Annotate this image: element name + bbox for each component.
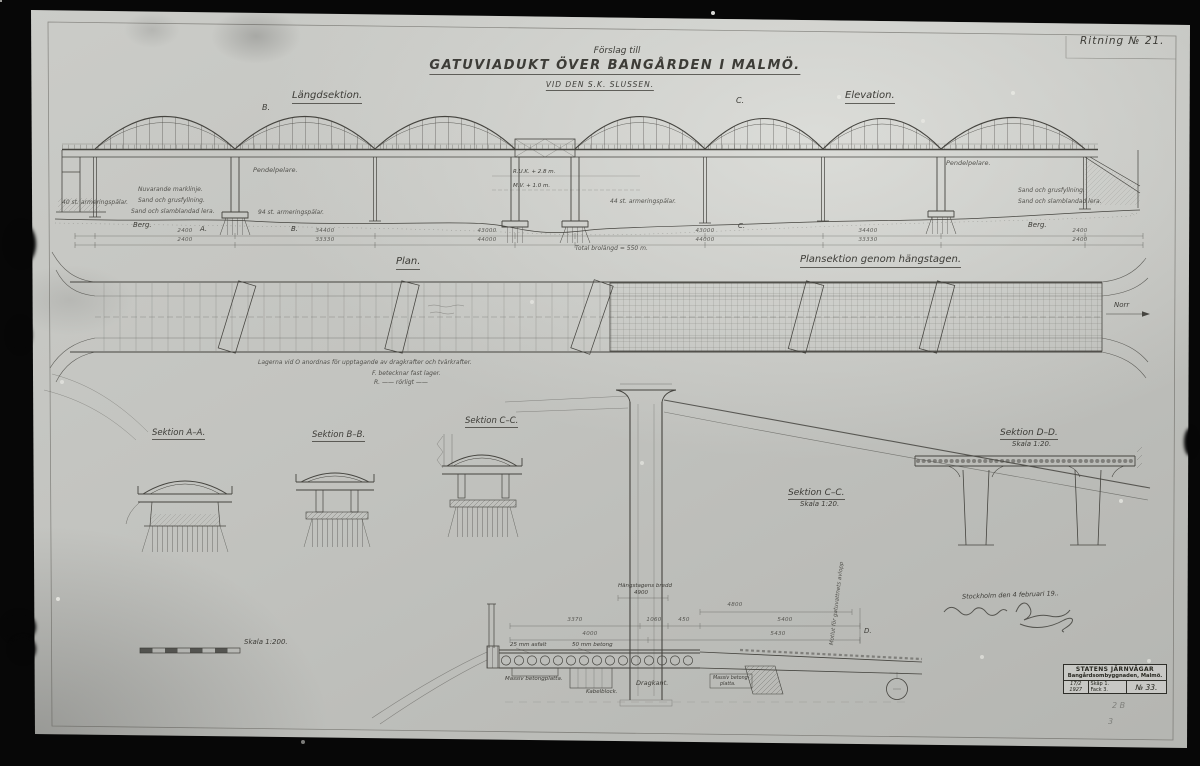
label-ritning-number: Ritning № 21.	[1080, 36, 1165, 47]
label-massiv-left: Massiv betongplatta.	[505, 677, 563, 683]
label-title-sub: VID DEN S.K. SLUSSEN.	[546, 81, 654, 91]
dim-sec-5430: 5430	[770, 632, 785, 638]
marker-d: D.	[864, 628, 872, 635]
label-ruk-level: R.U.K. + 2.8 m.	[513, 170, 555, 176]
dim-top-1: 34400	[316, 229, 335, 235]
label-view-langdsektion: Längdsektion.	[292, 91, 362, 104]
label-sektion-dd: Sektion D–D.	[1000, 429, 1058, 440]
marker-c-top: C.	[736, 97, 744, 105]
label-sand-lera-right: Sand och slamblandad lera.	[1018, 199, 1102, 205]
signature-strokes	[944, 603, 1073, 632]
label-kabelblock: Kabelblock.	[586, 690, 618, 696]
dim-top-4: 34400	[859, 229, 878, 235]
label-lager-note-1: Lagerna vid Ö anordnas för upptagande av…	[258, 360, 472, 366]
stamp-location-cell: Skåp 1.Fack 3.	[1089, 681, 1127, 693]
photo-edge-blob	[1184, 428, 1196, 456]
photo-edge-blob	[8, 318, 32, 352]
label-pendelpelare-right: Pendelpelare.	[946, 160, 991, 167]
label-lager-note-3: R. —— rörligt ——	[374, 380, 428, 386]
dim-bottom-0: 2400	[177, 238, 192, 244]
label-palar-mid: 44 st. armeringspålar.	[610, 199, 676, 205]
label-massiv-right-1: Massiv betong-	[713, 676, 749, 681]
label-mv-level: M.V. + 1.0 m.	[513, 184, 550, 190]
label-sektion-cc-small: Sektion C–C.	[465, 417, 518, 428]
stamp-date-cell: 17/21927	[1064, 681, 1089, 693]
label-total-length: Total brolängd = 550 m.	[575, 246, 648, 252]
drawing-paper: Ritning № 21. Förslag till GATUVIADUKT Ö…	[0, 0, 1200, 766]
label-sand-grus-right: Sand och grusfyllning.	[1018, 188, 1085, 194]
dim-sec-4000: 4000	[582, 632, 597, 638]
label-betong: 50 mm betong	[572, 643, 613, 649]
label-sektion-cc-large: Sektion C–C.	[788, 489, 845, 500]
drawing-linework	[0, 0, 1200, 766]
photo-backdrop: Ritning № 21. Förslag till GATUVIADUKT Ö…	[0, 0, 1200, 766]
dim-bottom-3: 44000	[696, 238, 715, 244]
dim-sec-450: 450	[678, 618, 689, 624]
dim-top-5: 2400	[1072, 229, 1087, 235]
label-asfalt: 25 mm asfalt	[510, 643, 546, 649]
dim-sec-5400: 5400	[777, 618, 792, 624]
dim-bottom-2: 44000	[478, 238, 497, 244]
label-massiv-right-2: platta.	[720, 682, 736, 687]
label-berg-right: Berg.	[1028, 222, 1047, 229]
photo-edge-blob	[6, 222, 36, 266]
stamp-agency: STATENS JÄRNVÄGAR	[1064, 665, 1166, 673]
label-lager-note-2: F. betecknar fast lager.	[372, 371, 441, 377]
label-hangstag-2: 4900	[634, 591, 648, 597]
label-norr: Norr	[1114, 302, 1129, 309]
label-sand-grus-left: Sand och grusfyllning.	[138, 198, 205, 204]
label-sektion-dd-skala: Skala 1:20.	[1012, 441, 1051, 448]
label-marklinje: Nuvarande marklinje.	[138, 187, 203, 193]
label-view-plan: Plan.	[396, 257, 420, 270]
label-sektion-cc-skala: Skala 1:20.	[800, 501, 839, 508]
label-sand-lera-left: Sand och slamblandad lera.	[131, 209, 215, 215]
label-palar-left: 40 st. armeringspålar.	[62, 200, 128, 206]
bottom-section-linework	[140, 595, 922, 724]
stamp-number-cell: № 33.	[1127, 683, 1166, 692]
dim-top-2: 43000	[478, 229, 497, 235]
label-view-plansektion: Plansektion genom hängstagen.	[800, 255, 961, 268]
pencil-mark-2: 3	[1108, 718, 1113, 726]
section-dd-linework	[915, 447, 1142, 545]
dim-bottom-1: 33330	[316, 238, 335, 244]
label-sektion-bb: Sektion B–B.	[312, 431, 365, 442]
approval-stamp: STATENS JÄRNVÄGAR Bangårdsombyggnaden, M…	[1063, 664, 1167, 694]
label-title-pretext: Förslag till	[594, 47, 641, 56]
dust-specks	[0, 0, 2, 2]
marker-a: A.	[200, 226, 207, 233]
marker-b-top: B.	[262, 104, 270, 112]
label-hangstag-1: Hängstagens bredd	[618, 584, 672, 590]
label-view-elevation: Elevation.	[845, 91, 895, 104]
archival-photo-of-drawing: { "photo": { "ritning": "Ritning № 21." …	[0, 0, 1200, 766]
label-sektion-aa: Sektion A–A.	[152, 429, 205, 440]
marker-c: C.	[738, 223, 745, 230]
pencil-mark-1: 2 B	[1112, 702, 1125, 710]
label-palar-right: 94 st. armeringspålar.	[258, 210, 324, 216]
dim-bottom-5: 2400	[1072, 238, 1087, 244]
label-pendelpelare-left: Pendelpelare.	[253, 167, 298, 174]
small-sections-linework	[126, 434, 522, 552]
marker-b: B.	[291, 226, 298, 233]
photo-edge-blob	[10, 636, 36, 662]
stamp-project: Bangårdsombyggnaden, Malmö.	[1064, 673, 1166, 681]
dim-top-3: 43000	[696, 229, 715, 235]
label-berg-left: Berg.	[133, 222, 152, 229]
plan-linework	[44, 252, 1150, 440]
elevation-linework	[55, 117, 1143, 249]
dim-sec-1060: 1060	[646, 618, 661, 624]
label-title-main: GATUVIADUKT ÖVER BANGÅRDEN I MALMÖ.	[429, 59, 800, 75]
dim-sec-4800: 4800	[727, 603, 742, 609]
label-dragkant: Dragkant.	[636, 680, 668, 687]
dim-sec-3370: 3370	[567, 618, 582, 624]
dim-top-0: 2400	[177, 229, 192, 235]
label-skala-1200: Skala 1:200.	[244, 639, 288, 646]
dim-bottom-4: 33330	[859, 238, 878, 244]
